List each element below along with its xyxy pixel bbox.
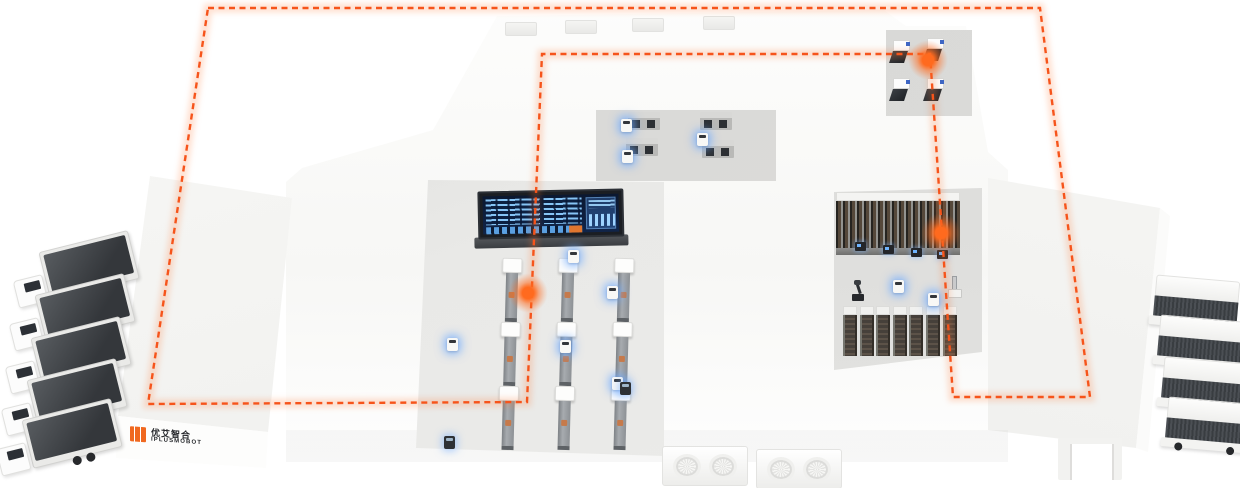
- rack-top: [860, 306, 874, 315]
- mobile-arm-robot: [850, 282, 866, 302]
- lift-robot-base: [948, 289, 962, 298]
- truck-wheel: [1226, 447, 1235, 456]
- dashboard-screen: [482, 194, 619, 235]
- bench-slots: [628, 118, 660, 130]
- station-pad: [620, 292, 626, 298]
- machine-indicator: [906, 42, 910, 46]
- fan-icon: [803, 457, 831, 482]
- assembly-station: [557, 258, 583, 323]
- assembly-station: [497, 386, 523, 451]
- rack-top: [843, 306, 857, 315]
- agv-robot: [560, 340, 571, 353]
- right-dock-doorway: [1058, 438, 1122, 480]
- rack-shelves: [909, 315, 923, 356]
- buffer-rack: [893, 306, 907, 356]
- station-head: [555, 386, 575, 402]
- cab-windshield: [20, 323, 38, 336]
- station-head: [556, 322, 576, 338]
- station-pad: [564, 292, 570, 298]
- machine-indicator: [940, 80, 944, 84]
- box-truck: [1160, 396, 1240, 460]
- agv-robot: [893, 280, 904, 293]
- lift-robot-mast: [952, 276, 957, 290]
- machine-indicator: [940, 40, 944, 44]
- rack-shelves: [843, 315, 857, 356]
- storage-rack-top: [836, 192, 960, 201]
- rack-top: [926, 306, 940, 315]
- station-pad: [563, 356, 569, 362]
- roof-vent: [505, 22, 537, 36]
- cab-windshield: [24, 280, 42, 293]
- route-waypoint-dot: [921, 213, 961, 253]
- cnc-machine: [925, 78, 947, 104]
- roof-vent: [632, 18, 664, 32]
- hvac-unit: [662, 446, 748, 486]
- rack-shelves: [860, 315, 874, 356]
- production-dashboard: [475, 188, 626, 253]
- station-head: [500, 322, 520, 338]
- agv-robot: [444, 436, 455, 449]
- station-pad: [561, 420, 567, 426]
- robot-arm-joint: [854, 280, 861, 285]
- buffer-rack: [909, 306, 923, 356]
- bench-slots: [702, 146, 734, 158]
- fan-icon: [709, 454, 737, 479]
- buffer-rack: [926, 306, 940, 356]
- route-waypoint-dot: [908, 40, 948, 80]
- smart-factory-isometric-scene: 优艾智合 IPLUSMOBOT: [0, 0, 1240, 488]
- agv-robot: [607, 286, 618, 299]
- agv-robot: [447, 338, 458, 351]
- test-bench: [628, 112, 660, 130]
- assembly-station: [555, 322, 581, 387]
- roof-vent: [565, 20, 597, 34]
- dashboard-alert-cell: [569, 225, 582, 232]
- buffer-rack: [876, 306, 890, 356]
- machine-indicator: [906, 80, 910, 84]
- rack-top: [893, 306, 907, 315]
- dashboard-table-panel: [486, 198, 541, 225]
- agv-robot: [622, 150, 633, 163]
- logo-mark-icon: [130, 426, 146, 442]
- fan-icon: [767, 457, 795, 482]
- dashboard-status-strip: [486, 225, 582, 234]
- assembly-station: [553, 386, 579, 451]
- buffer-rack: [943, 306, 957, 356]
- assembly-line: [553, 258, 582, 451]
- cab-windshield: [7, 448, 25, 461]
- station-pad: [507, 356, 513, 362]
- agv-robot: [928, 293, 939, 306]
- agv-robot: [568, 250, 579, 263]
- station-head: [502, 258, 522, 274]
- station-head: [499, 386, 519, 402]
- dashboard-chart-panel: [586, 197, 617, 230]
- lift-robot: [948, 276, 962, 298]
- agv-robot: [621, 119, 632, 132]
- docked-agv: [911, 248, 922, 257]
- fan-icon: [673, 454, 701, 479]
- docked-agv: [855, 242, 866, 251]
- route-waypoint-dot: [508, 273, 548, 313]
- rack-shelves: [943, 315, 957, 356]
- buffer-rack: [843, 306, 857, 356]
- agv-robot: [620, 382, 631, 395]
- machine-stand: [923, 89, 942, 101]
- station-pad: [505, 420, 511, 426]
- test-bench: [700, 112, 732, 130]
- assembly-station: [499, 322, 525, 387]
- dashboard-frame: [477, 188, 624, 239]
- buffer-rack: [860, 306, 874, 356]
- rack-top: [909, 306, 923, 315]
- docked-agv: [883, 245, 894, 254]
- truck-wheel: [1174, 442, 1183, 451]
- station-head: [614, 258, 634, 274]
- logo-text-en: IPLUSMOBOT: [151, 437, 202, 447]
- truck-cab: [0, 442, 32, 476]
- hvac-unit: [756, 449, 842, 488]
- roof-vent: [703, 16, 735, 30]
- station-head: [612, 322, 632, 338]
- rack-top: [876, 306, 890, 315]
- rack-shelves: [926, 315, 940, 356]
- rack-top: [943, 306, 957, 315]
- station-pad: [617, 420, 623, 426]
- machine-stand: [889, 51, 908, 63]
- assembly-station: [609, 386, 635, 451]
- agv-robot: [697, 133, 708, 146]
- rack-shelves: [876, 315, 890, 356]
- robot-base: [852, 294, 864, 301]
- machine-stand: [889, 89, 908, 101]
- station-pad: [619, 356, 625, 362]
- cnc-machine: [891, 78, 913, 104]
- bench-slots: [700, 118, 732, 130]
- rack-shelves: [893, 315, 907, 356]
- dashboard-table-panel: [544, 197, 583, 224]
